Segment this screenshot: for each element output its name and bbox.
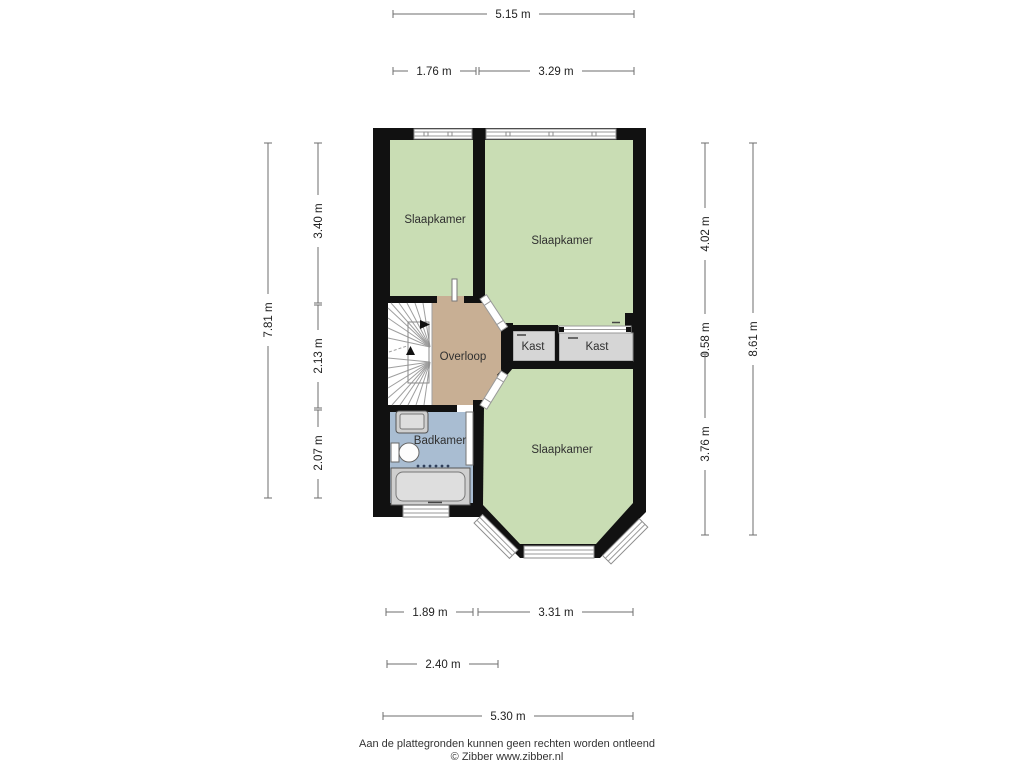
dim-right-seg3: 3.76 m xyxy=(698,354,712,535)
wall-door-stub-top xyxy=(464,296,473,303)
window-bottom-left xyxy=(403,505,449,517)
footer-disclaimer: Aan de plattegronden kunnen geen rechten… xyxy=(359,738,655,750)
svg-text:5.15 m: 5.15 m xyxy=(495,9,530,21)
window-top-right xyxy=(486,129,616,139)
wall-closet-bottom xyxy=(501,361,633,369)
svg-text:3.29 m: 3.29 m xyxy=(538,66,573,78)
svg-text:2.40 m: 2.40 m xyxy=(425,659,460,671)
svg-text:3.40 m: 3.40 m xyxy=(313,203,325,238)
svg-text:3.76 m: 3.76 m xyxy=(700,426,712,461)
wall-bathroom-right xyxy=(473,400,483,517)
landing-door-gap xyxy=(437,296,464,302)
dim-right-total: 8.61 m xyxy=(746,143,760,535)
svg-text:1.76 m: 1.76 m xyxy=(416,66,451,78)
svg-text:2.13 m: 2.13 m xyxy=(313,338,325,373)
wall-above-stairs xyxy=(388,296,437,303)
wall-bathroom-top xyxy=(432,405,457,412)
dim-bottom-left: 1.89 m xyxy=(386,605,473,619)
dim-bottom-mid: 2.40 m xyxy=(387,657,498,671)
svg-text:4.02 m: 4.02 m xyxy=(700,216,712,251)
door-gap-bathroom xyxy=(457,405,473,412)
footer-credit: © Zibber www.zibber.nl xyxy=(451,751,564,763)
svg-text:3.31 m: 3.31 m xyxy=(538,607,573,619)
dim-bottom-total: 5.30 m xyxy=(383,709,633,723)
window-top-left xyxy=(414,129,472,139)
dim-left-seg1: 3.40 m xyxy=(311,143,325,303)
wall-bedroom-divider xyxy=(473,128,485,303)
room-closet-left-label: Kast xyxy=(521,341,545,353)
room-bathroom-label: Badkamer xyxy=(414,435,467,447)
floorplan-canvas: Slaapkamer Slaapkamer Overloop Kast Kast… xyxy=(0,0,1024,768)
bay-window-bottom xyxy=(524,546,594,558)
room-bedroom-bottom-floor xyxy=(483,369,633,544)
dim-left-seg3: 2.07 m xyxy=(311,410,325,498)
svg-text:1.89 m: 1.89 m xyxy=(412,607,447,619)
room-bedroom-top-left-label: Slaapkamer xyxy=(404,214,466,226)
room-bedroom-top-right-floor xyxy=(485,140,633,326)
room-landing-label: Overloop xyxy=(440,351,487,363)
dim-left-total: 7.81 m xyxy=(261,143,275,498)
dim-top-total: 5.15 m xyxy=(393,7,634,21)
room-closet-right-label: Kast xyxy=(585,341,609,353)
door-leaf-bathroom xyxy=(466,412,473,465)
bathtub xyxy=(391,468,470,505)
wall-closet-divider xyxy=(555,326,559,362)
dim-left-seg2: 2.13 m xyxy=(311,305,325,408)
svg-text:7.81 m: 7.81 m xyxy=(263,302,275,337)
room-bedroom-bottom-label: Slaapkamer xyxy=(531,444,593,456)
svg-text:5.30 m: 5.30 m xyxy=(490,711,525,723)
svg-text:8.61 m: 8.61 m xyxy=(748,321,760,356)
dim-bottom-right: 3.31 m xyxy=(478,605,633,619)
sink xyxy=(396,411,428,433)
room-bedroom-top-right-label: Slaapkamer xyxy=(531,235,593,247)
svg-text:0.58 m: 0.58 m xyxy=(700,322,712,357)
dim-top-left: 1.76 m xyxy=(393,64,476,78)
svg-text:2.07 m: 2.07 m xyxy=(313,435,325,470)
wall-closet-left-top xyxy=(513,325,558,331)
dim-right-seg1: 4.02 m xyxy=(698,143,712,326)
door-leaf-bedroom-top-left xyxy=(452,279,457,301)
dim-top-right: 3.29 m xyxy=(479,64,634,78)
floorplan-page: Slaapkamer Slaapkamer Overloop Kast Kast… xyxy=(0,0,1024,768)
